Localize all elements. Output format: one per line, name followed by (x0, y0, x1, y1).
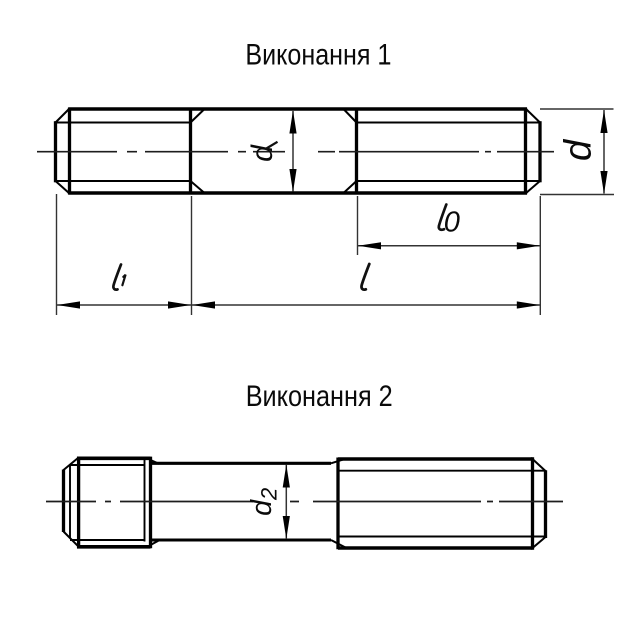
svg-text:d: d (558, 138, 600, 161)
svg-text:d2: d2 (246, 488, 282, 516)
svg-text:Виконання 1: Виконання 1 (245, 38, 391, 71)
svg-text:0: 0 (444, 206, 460, 238)
svg-text:d: d (246, 144, 279, 162)
svg-text:Виконання 2: Виконання 2 (246, 380, 393, 413)
